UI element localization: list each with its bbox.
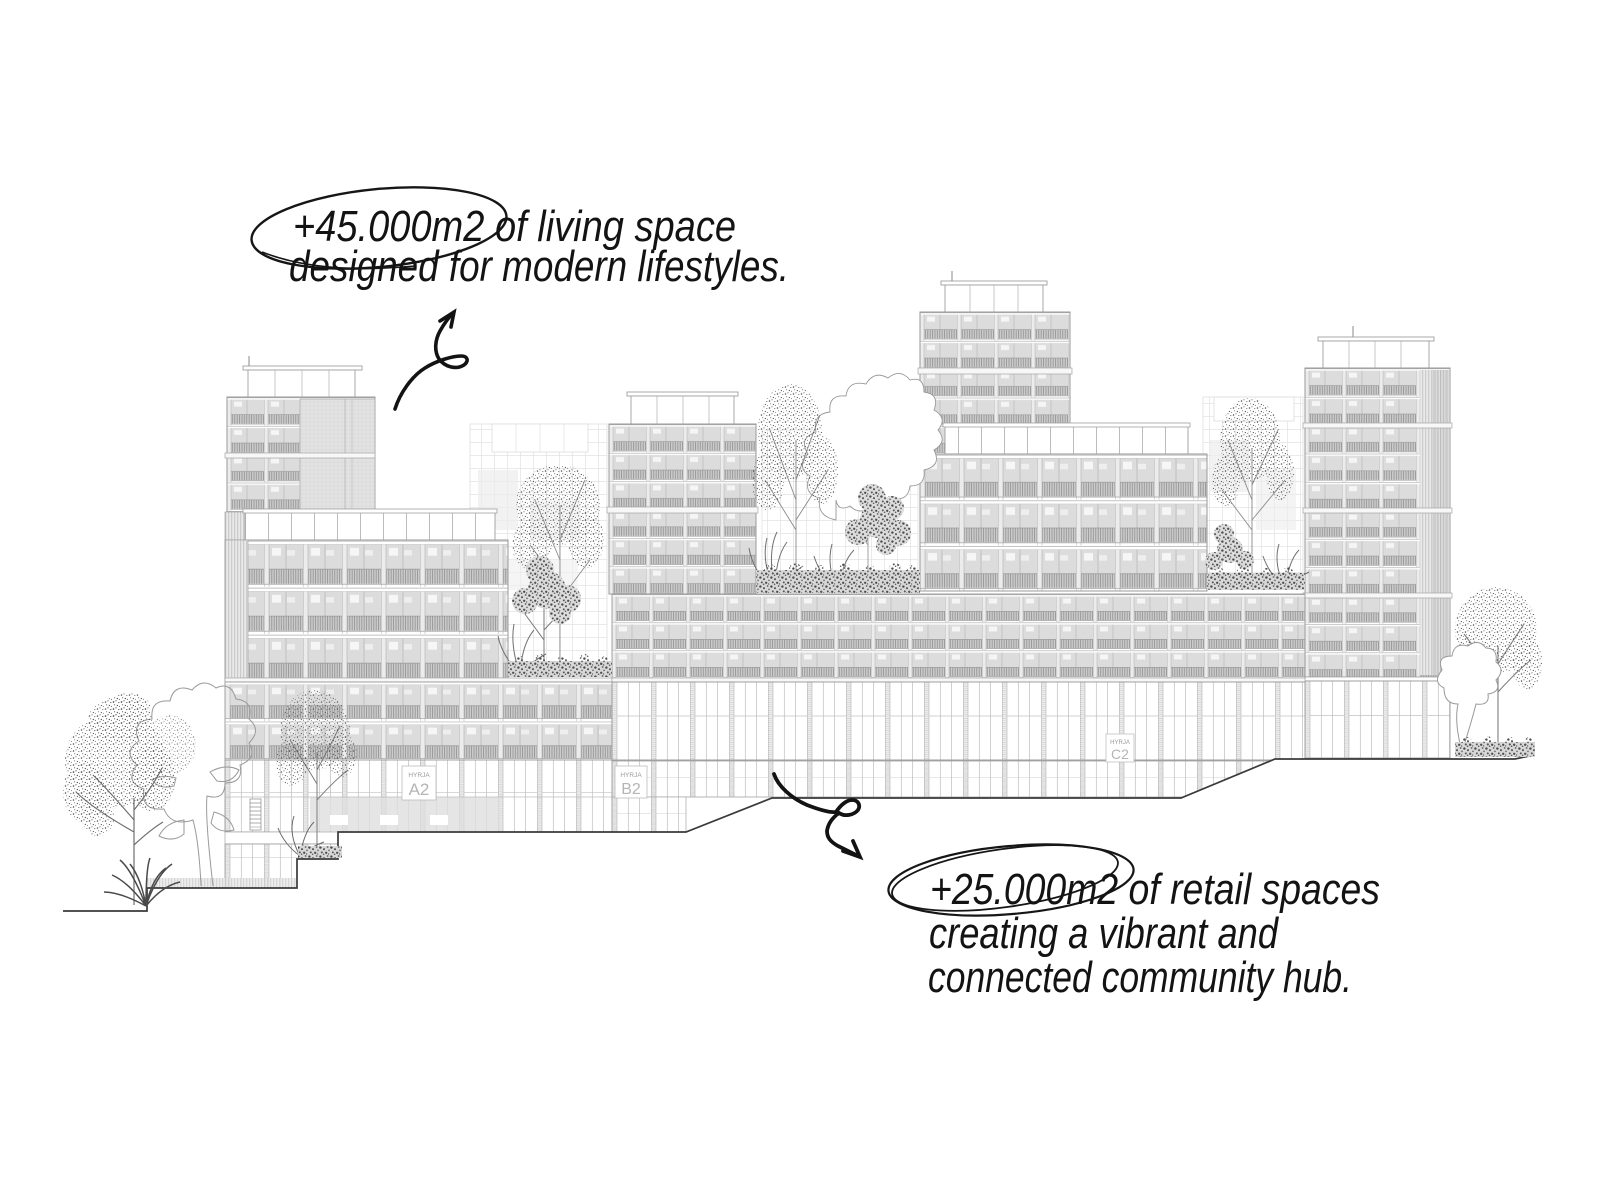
svg-text:B2: B2 xyxy=(621,781,641,798)
svg-text:HYRJA: HYRJA xyxy=(620,772,642,779)
svg-text:A2: A2 xyxy=(409,780,430,799)
svg-text:C2: C2 xyxy=(1111,746,1129,762)
svg-text:HYRJA: HYRJA xyxy=(408,772,430,779)
svg-text:+25.000m2 of retail spaces: +25.000m2 of retail spaces xyxy=(930,865,1380,914)
svg-text:designed for modern lifestyles: designed for modern lifestyles. xyxy=(289,242,789,291)
svg-text:creating a vibrant and: creating a vibrant and xyxy=(929,909,1279,958)
svg-text:connected community hub.: connected community hub. xyxy=(928,953,1352,1002)
